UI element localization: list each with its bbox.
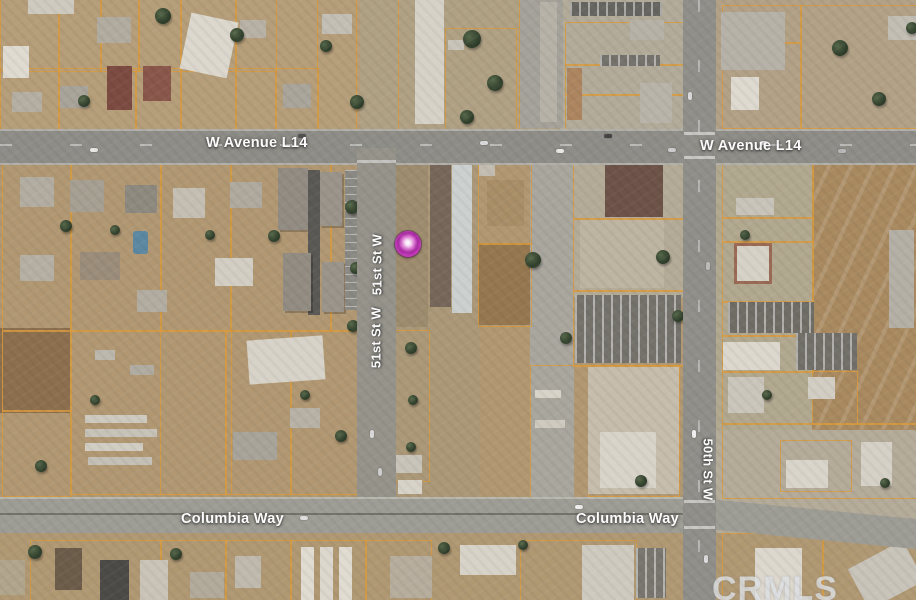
street-label-51st-lower: 51st St W <box>369 300 384 376</box>
street-label-avenue-west: W Avenue L14 <box>206 135 308 151</box>
crmls-watermark: CRMLS <box>712 570 838 600</box>
street-label-avenue-east: W Avenue L14 <box>700 138 802 154</box>
street-label-columbia-west: Columbia Way <box>181 511 284 527</box>
street-label-columbia-east: Columbia Way <box>576 511 679 527</box>
property-marker[interactable] <box>395 231 421 257</box>
aerial-map: W Avenue L14 W Avenue L14 Columbia Way C… <box>0 0 916 600</box>
street-label-50th: 50th St W <box>701 432 716 508</box>
street-label-51st-upper: 51st St W <box>370 227 385 303</box>
